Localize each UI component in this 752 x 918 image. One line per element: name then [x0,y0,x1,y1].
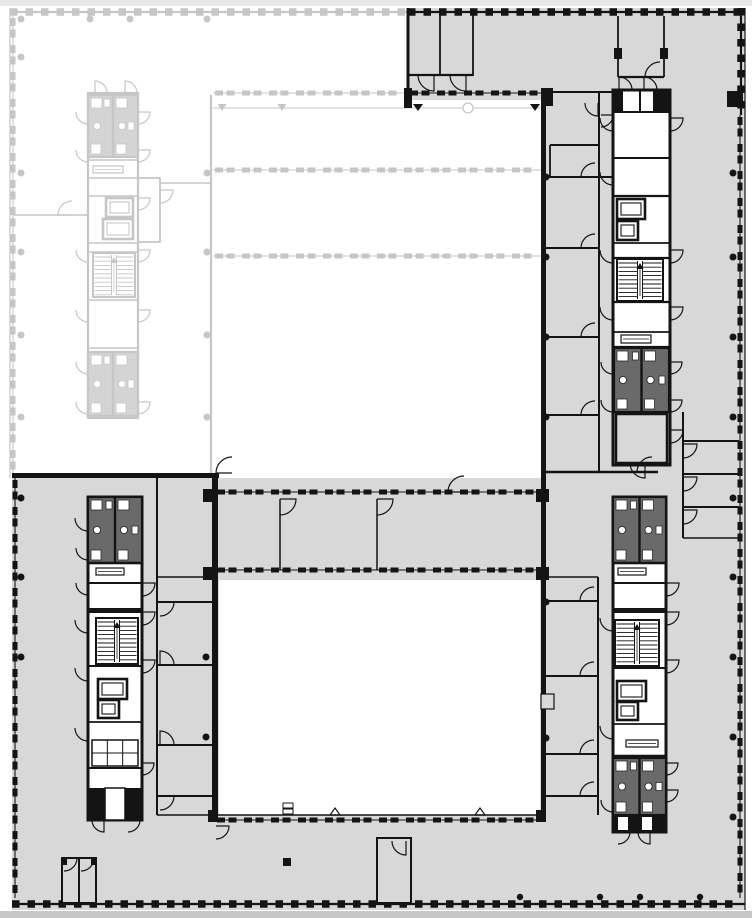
window-mullion [227,168,235,173]
window-mullion [11,462,16,470]
toilet-stall [116,144,126,154]
exterior-wall-block [579,8,587,16]
exterior-wall-block [41,8,49,16]
window-mullion [11,207,16,215]
window-mullion [298,568,306,573]
window-mullion [514,568,522,573]
door-swing [95,81,107,93]
window-mullion [738,372,743,380]
window-mullion [470,168,478,173]
window-mullion [350,168,358,173]
window-mullion [738,630,743,638]
window-mullion [352,490,360,495]
window-mullion [514,490,522,495]
window-mullion [738,399,743,407]
window-mullion [13,654,18,662]
window-mullion [323,168,331,173]
plan-rect [62,858,67,865]
window-mullion [11,126,16,134]
window-mullion [13,561,18,569]
exterior-wall-block [150,8,158,16]
exterior-wall-block [260,900,268,908]
exterior-wall-block [424,8,432,16]
toilet-icon [645,526,652,533]
plan-rect [219,580,540,815]
toilet-stall [116,98,127,108]
window-mullion [503,91,511,96]
window-mullion [13,723,18,731]
window-mullion [215,91,223,96]
column-dot [18,654,25,661]
plan-rect [536,810,546,822]
column-dot [204,170,211,177]
window-mullion [227,254,235,259]
plan-rect [660,48,668,59]
toilet-stall [616,550,626,560]
exterior-wall-block [291,900,299,908]
window-mullion [13,669,18,677]
exterior-wall-block [663,900,671,908]
window-mullion [13,789,18,797]
window-mullion [738,198,743,206]
window-mullion [215,254,223,259]
window-mullion [460,818,468,823]
exterior-wall-block [338,900,346,908]
window-mullion [497,168,505,173]
window-mullion [11,396,16,404]
exterior-wall-block [718,8,726,16]
window-mullion [738,522,743,530]
window-mullion [738,183,743,191]
window-mullion [377,91,385,96]
window-mullion [229,490,237,495]
window-mullion [364,568,372,573]
window-mullion [458,254,466,259]
sink-icon [631,501,637,509]
window-mullion [472,568,480,573]
floor-plan-svg [0,0,752,918]
window-mullion [11,84,16,92]
exterior-wall-block [508,900,516,908]
exterior-wall-block [367,8,375,16]
window-mullion [227,91,235,96]
window-mullion [11,57,16,65]
window-mullion [217,818,225,823]
plan-rect [408,8,745,100]
sink-icon [132,526,138,534]
exterior-wall-block [486,8,494,16]
exterior-wall-block [72,8,80,16]
window-mullion [350,254,358,259]
exterior-wall-block [212,8,220,16]
plan-rect [642,817,652,830]
window-mullion [418,568,426,573]
door-swing [76,250,88,262]
sink-icon [106,501,112,509]
column-dot [543,334,550,341]
plan-rect [536,567,549,580]
column-dot [730,814,737,821]
window-mullion [11,261,16,269]
window-mullion [310,818,318,823]
window-mullion [11,369,16,377]
column-dot [697,894,703,900]
window-mullion [738,264,743,272]
plan-rect [0,0,752,6]
window-mullion [11,435,16,443]
plan-rect [283,803,293,808]
window-mullion [738,414,743,422]
window-mullion [254,91,262,96]
window-mullion [738,360,743,368]
exterior-wall-block [258,8,266,16]
column-dot [730,334,737,341]
column-dot [543,599,550,606]
window-mullion [11,342,16,350]
window-mullion [391,490,399,495]
window-mullion [389,254,397,259]
window-mullion [738,723,743,731]
window-mullion [13,600,18,608]
window-mullion [738,225,743,233]
window-mullion [738,642,743,650]
column-dot [18,54,25,61]
window-mullion [362,91,370,96]
door-swing [76,310,88,322]
exterior-wall-block [43,900,51,908]
window-mullion [13,588,18,596]
toilet-stall [91,500,102,510]
column-dot [203,734,210,741]
toilet-stall [118,500,129,510]
exterior-wall-block [274,8,282,16]
exterior-wall-block [501,8,509,16]
exterior-wall-block [493,900,501,908]
window-mullion [738,657,743,665]
window-mullion [406,568,414,573]
window-mullion [491,91,499,96]
elevator [98,700,119,718]
window-mullion [422,91,430,96]
toilet-icon [120,526,127,533]
window-mullion [738,237,743,245]
window-mullion [418,490,426,495]
exterior-wall-block [152,900,160,908]
exterior-wall-block [320,8,328,16]
toilet-stall [116,403,126,413]
window-mullion [379,490,387,495]
window-mullion [499,568,507,573]
column-dot [637,894,643,900]
window-mullion [738,804,743,812]
sink-icon [656,783,662,791]
door-swing [160,190,173,203]
window-mullion [738,453,743,461]
toilet-stall [91,403,101,413]
window-mullion [738,426,743,434]
window-mullion [296,254,304,259]
window-mullion [11,300,16,308]
window-mullion [13,750,18,758]
plan-rect [618,817,628,830]
window-mullion [308,168,316,173]
window-mullion [13,507,18,515]
column-dot [730,254,737,261]
toilet-icon [645,783,652,790]
window-mullion [244,568,252,573]
toilet-stall [616,802,626,812]
plan-rect [614,48,622,59]
exterior-wall-block [322,900,330,908]
door-swing [216,457,232,473]
window-mullion [269,91,277,96]
window-mullion [738,684,743,692]
exterior-wall-block [725,900,733,908]
plan-rect [541,694,554,709]
exterior-wall-block [398,8,406,16]
column-dot [543,254,550,261]
door-swing [138,402,150,414]
window-mullion [11,153,16,161]
window-mullion [738,306,743,314]
door-swing [76,150,88,162]
window-mullion [738,711,743,719]
window-mullion [11,315,16,323]
exterior-wall-block [289,8,297,16]
exterior-wall-block [703,8,711,16]
sink-icon [104,99,110,107]
window-mullion [13,870,18,878]
window-mullion [443,254,451,259]
window-mullion [229,818,237,823]
exterior-wall-block [12,900,20,908]
sink-icon [631,762,637,770]
window-mullion [418,818,426,823]
toilet-stall [118,550,128,560]
window-mullion [13,858,18,866]
window-mullion [476,91,484,96]
exterior-wall-block [687,8,695,16]
window-mullion [416,254,424,259]
window-mullion [13,642,18,650]
plan-rect [88,608,142,613]
window-mullion [283,568,291,573]
exterior-wall-block [617,900,625,908]
window-mullion [431,254,439,259]
window-mullion [269,254,277,259]
toilet-stall [616,500,627,510]
window-mullion [404,168,412,173]
column-dot [730,734,737,741]
window-mullion [458,168,466,173]
window-mullion [364,490,372,495]
window-mullion [460,568,468,573]
window-mullion [269,168,277,173]
window-mullion [337,490,345,495]
plan-rect [727,91,743,107]
window-mullion [512,254,520,259]
window-mullion [738,495,743,503]
floor-plan [0,0,752,918]
exterior-wall-block [694,900,702,908]
window-mullion [11,327,16,335]
exterior-wall-block [229,900,237,908]
window-mullion [310,490,318,495]
window-mullion [325,818,333,823]
grid-bubble [463,103,473,113]
column-dot [730,574,737,581]
window-mullion [738,333,743,341]
plan-rect [125,788,142,820]
window-mullion [362,168,370,173]
exterior-wall-block [737,8,745,16]
window-mullion [244,818,252,823]
exterior-wall-block [165,8,173,16]
window-mullion [738,819,743,827]
exterior-wall-block [181,8,189,16]
window-mullion [229,568,237,573]
column-dot [730,654,737,661]
toilet-icon [619,376,626,383]
column-dot [87,16,94,23]
window-mullion [11,30,16,38]
elevator [617,221,638,240]
window-mullion [298,818,306,823]
window-mullion [433,490,441,495]
window-mullion [738,129,743,137]
window-mullion [13,534,18,542]
window-mullion [391,568,399,573]
exterior-wall-block [455,8,463,16]
window-mullion [283,490,291,495]
exterior-wall-block [121,900,129,908]
toilet-stall [643,802,653,812]
exterior-wall-block [548,8,556,16]
window-mullion [391,818,399,823]
plan-rect [88,788,105,820]
exterior-wall-block [555,900,563,908]
window-mullion [738,549,743,557]
window-mullion [296,91,304,96]
exterior-wall-block [477,900,485,908]
window-mullion [530,91,538,96]
toilet-stall [91,144,101,154]
window-mullion [337,568,345,573]
window-mullion [11,138,16,146]
window-mullion [13,519,18,527]
window-mullion [738,117,743,125]
toilet-stall [91,355,102,365]
window-mullion [352,568,360,573]
exterior-wall-block [524,900,532,908]
window-mullion [404,254,412,259]
window-mullion [499,818,507,823]
window-mullion [13,696,18,704]
exterior-wall-block [336,8,344,16]
window-mullion [433,568,441,573]
window-mullion [472,490,480,495]
window-mullion [738,696,743,704]
window-mullion [362,254,370,259]
window-mullion [13,627,18,635]
toilet-stall [645,351,656,361]
exterior-wall-block [586,900,594,908]
window-mullion [524,254,532,259]
door-swing [76,362,88,374]
floor-plan-page [0,0,752,918]
plan-rect [203,567,216,580]
column-dot [543,174,550,181]
exterior-wall-block [196,8,204,16]
window-mullion [217,490,225,495]
exterior-wall-block [570,900,578,908]
window-mullion [296,168,304,173]
toilet-stall [116,355,127,365]
door-swing [138,310,150,322]
exterior-wall-block [305,8,313,16]
window-mullion [283,818,291,823]
column-dot [730,170,737,177]
window-mullion [389,168,397,173]
window-mullion [449,91,457,96]
toilet-stall [617,399,627,409]
window-mullion [11,234,16,242]
exterior-wall-block [351,8,359,16]
window-mullion [11,450,16,458]
window-mullion [738,480,743,488]
exterior-wall-block [431,900,439,908]
window-mullion [738,291,743,299]
sink-icon [656,526,662,534]
exterior-wall-block [119,8,127,16]
sink-icon [659,376,665,384]
plan-rect [613,90,623,112]
plan-rect [212,478,218,815]
sink-icon [128,122,134,130]
exterior-wall-block [415,900,423,908]
window-mullion [377,168,385,173]
window-mullion [433,818,441,823]
window-mullion [11,192,16,200]
toilet-icon [618,526,625,533]
exterior-wall-block [710,900,718,908]
door-swing [138,112,150,124]
window-mullion [738,846,743,854]
window-mullion [487,568,495,573]
toilet-stall [616,761,627,771]
exterior-wall-block [601,900,609,908]
window-mullion [512,168,520,173]
column-dot [18,332,25,339]
window-mullion [335,168,343,173]
window-mullion [271,490,279,495]
window-mullion [11,99,16,107]
exterior-wall-block [105,900,113,908]
exterior-wall-block [625,8,633,16]
column-dot [730,495,737,502]
window-mullion [11,408,16,416]
window-mullion [281,254,289,259]
window-mullion [281,168,289,173]
window-mullion [256,490,264,495]
window-mullion [416,168,424,173]
window-mullion [271,568,279,573]
column-dot [18,574,25,581]
exterior-wall-block [103,8,111,16]
toilet-icon [618,783,625,790]
toilet-stall [643,550,653,560]
toilet-icon [93,380,100,387]
